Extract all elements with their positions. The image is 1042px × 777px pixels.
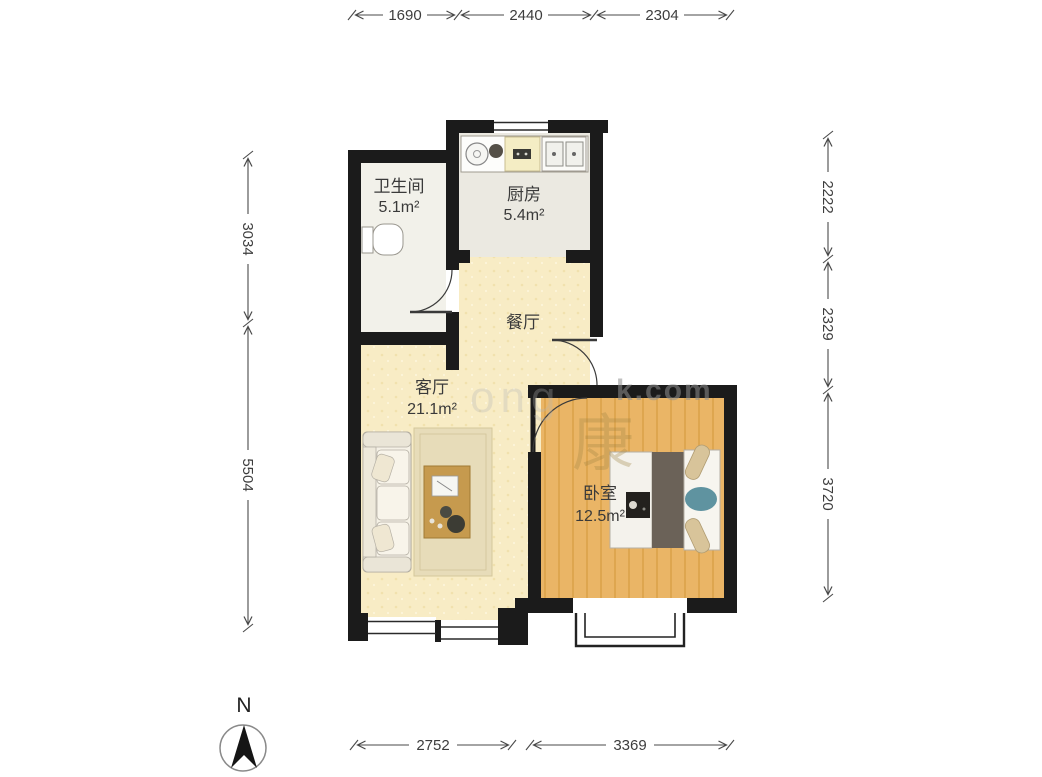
- drain-dot: [572, 152, 576, 156]
- kitchen-label: 厨房: [507, 185, 541, 204]
- pot-icon: [489, 144, 503, 158]
- kitchen-area: 5.4m²: [504, 207, 546, 224]
- toilet-bowl: [373, 224, 403, 255]
- table-dot: [438, 524, 443, 529]
- coffee-table: [424, 466, 470, 538]
- sofa: [363, 432, 411, 572]
- sofa-armrest-bottom: [363, 557, 411, 572]
- drain-dot: [552, 152, 556, 156]
- bed-blanket: [652, 452, 684, 548]
- burner-dot: [525, 153, 528, 156]
- cooktop-burner-icon: [466, 143, 488, 165]
- dim-tick: [243, 151, 253, 159]
- dim-tick: [726, 740, 734, 750]
- dim-right-1: 2222: [819, 180, 836, 213]
- dim-tick: [823, 594, 833, 602]
- burner-dot: [517, 153, 520, 156]
- dim-left-2: 5504: [239, 458, 256, 491]
- dim-top-3: 2304: [645, 7, 678, 24]
- watermark-text-domain: k.com: [616, 374, 713, 407]
- sofa-armrest-top: [363, 432, 411, 447]
- kitchen-counter: [461, 136, 588, 172]
- living-furniture: [363, 428, 492, 576]
- living-window-band-2: [441, 622, 498, 646]
- stove-burners-icon: [513, 149, 531, 159]
- dim-bottom-1: 2752: [416, 737, 449, 754]
- bedroom-area: 12.5m²: [575, 508, 625, 525]
- dim-tick: [526, 740, 534, 750]
- bathroom-area: 5.1m²: [379, 199, 421, 216]
- floor-plan-page: ong k.com 康 卫生间 5.1m² 厨房 5.4m² 餐厅 客厅 21.…: [0, 0, 1042, 777]
- living-area: 21.1m²: [407, 401, 457, 418]
- dim-tick: [823, 386, 833, 394]
- table-plant-icon: [440, 506, 452, 518]
- bedroom-label: 卧室: [583, 484, 617, 503]
- living-label: 客厅: [415, 378, 449, 397]
- dim-tick: [823, 131, 833, 139]
- tv-detail: [643, 508, 646, 511]
- dim-tick: [454, 10, 462, 20]
- dim-tick: [243, 319, 253, 327]
- sofa-cushion: [377, 486, 409, 520]
- toilet-tank: [362, 227, 373, 253]
- dim-top-1: 1690: [388, 7, 421, 24]
- dim-tick: [726, 10, 734, 20]
- dim-right-3: 3720: [819, 477, 836, 510]
- dim-tick: [243, 624, 253, 632]
- dim-tick: [508, 740, 516, 750]
- dim-tick: [823, 255, 833, 263]
- bed-round-cushion: [685, 487, 717, 511]
- dining-label: 餐厅: [506, 313, 540, 332]
- compass-n-label: N: [236, 694, 251, 717]
- dim-tick: [348, 10, 356, 20]
- dim-top-2: 2440: [509, 7, 542, 24]
- dim-bottom-2: 3369: [613, 737, 646, 754]
- dim-tick: [350, 740, 358, 750]
- watermark-text-latin: ong: [470, 373, 561, 422]
- bay-window-area: [573, 598, 687, 648]
- compass: N: [220, 694, 266, 771]
- bathroom-label: 卫生间: [374, 177, 425, 196]
- dim-right-2: 2329: [819, 307, 836, 340]
- toilet: [362, 224, 403, 255]
- tv-detail: [629, 501, 637, 509]
- table-plant-icon: [447, 515, 465, 533]
- floor-plan-drawing: ong k.com 康 卫生间 5.1m² 厨房 5.4m² 餐厅 客厅 21.…: [0, 0, 1042, 777]
- dim-left-1: 3034: [239, 222, 256, 255]
- watermark-text-cn: 康: [572, 410, 634, 479]
- dim-tick: [590, 10, 598, 20]
- table-dot: [430, 519, 435, 524]
